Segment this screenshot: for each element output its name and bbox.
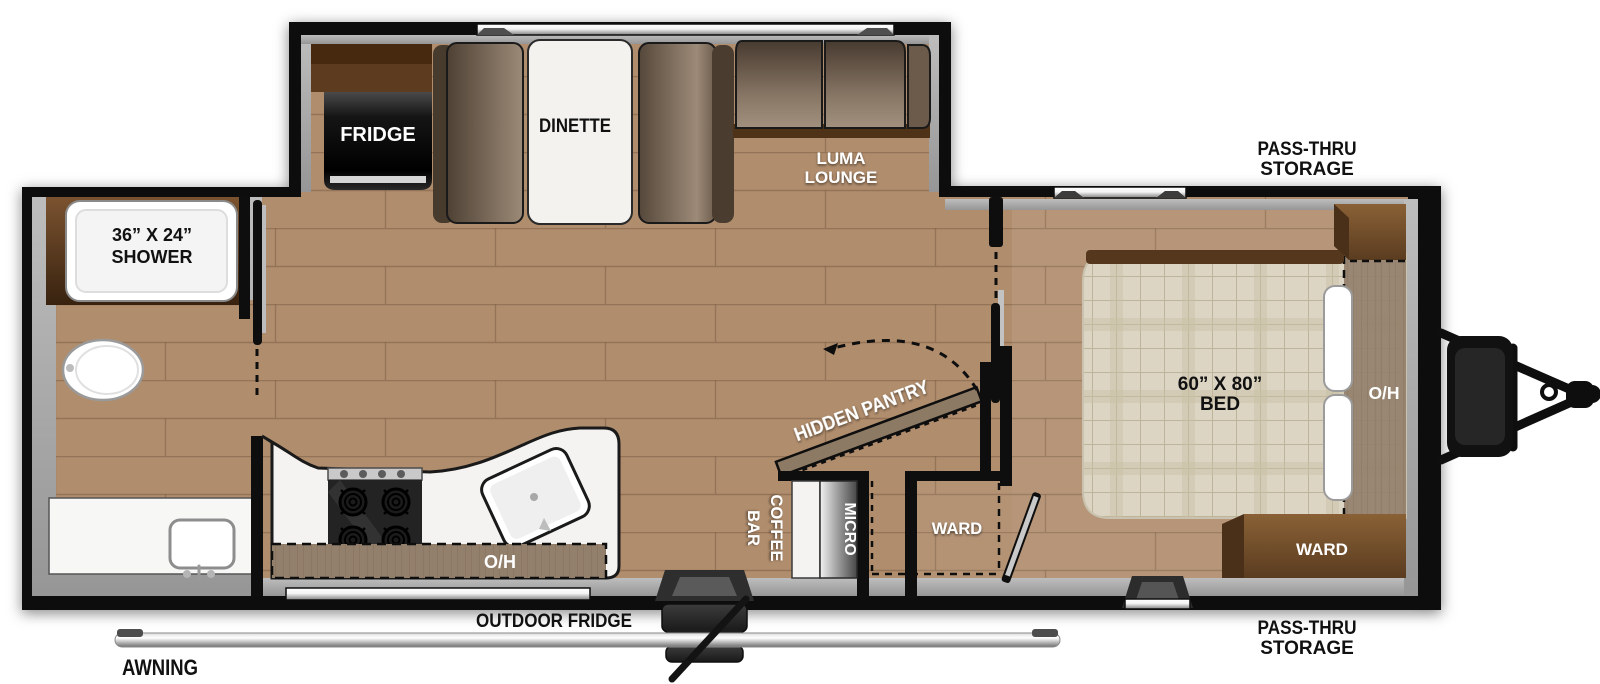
svg-text:O/H: O/H — [484, 552, 516, 572]
svg-text:STORAGE: STORAGE — [1260, 638, 1354, 659]
svg-text:MICRO: MICRO — [841, 502, 858, 555]
svg-text:DINETTE: DINETTE — [539, 116, 611, 137]
svg-text:LUMA: LUMA — [816, 149, 865, 168]
svg-text:WARD: WARD — [1296, 540, 1348, 559]
svg-text:PASS-THRU: PASS-THRU — [1258, 618, 1357, 639]
svg-text:PASS-THRU: PASS-THRU — [1258, 139, 1357, 160]
svg-text:STORAGE: STORAGE — [1260, 159, 1354, 180]
svg-text:SHOWER: SHOWER — [112, 247, 193, 267]
svg-text:BED: BED — [1200, 394, 1240, 415]
svg-text:FRIDGE: FRIDGE — [340, 124, 416, 146]
svg-text:60” X 80”: 60” X 80” — [1178, 374, 1263, 395]
svg-text:O/H: O/H — [1368, 383, 1399, 403]
svg-text:OUTDOOR FRIDGE: OUTDOOR FRIDGE — [476, 611, 632, 632]
svg-text:AWNING: AWNING — [122, 655, 198, 680]
svg-text:COFFEE: COFFEE — [767, 495, 785, 562]
svg-text:LOUNGE: LOUNGE — [805, 168, 878, 187]
svg-text:36” X 24”: 36” X 24” — [112, 225, 192, 245]
svg-text:BAR: BAR — [744, 510, 762, 546]
svg-text:WARD: WARD — [932, 520, 982, 538]
